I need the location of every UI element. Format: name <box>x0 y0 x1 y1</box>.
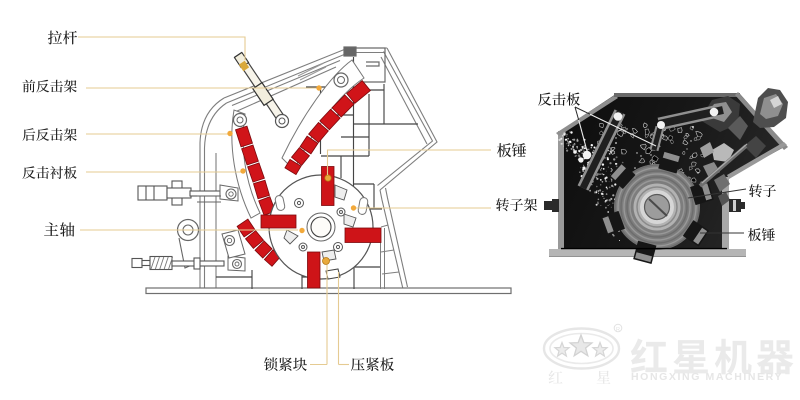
svg-text:HONGXING MACHINERY: HONGXING MACHINERY <box>631 371 783 383</box>
svg-text:R: R <box>616 327 620 333</box>
